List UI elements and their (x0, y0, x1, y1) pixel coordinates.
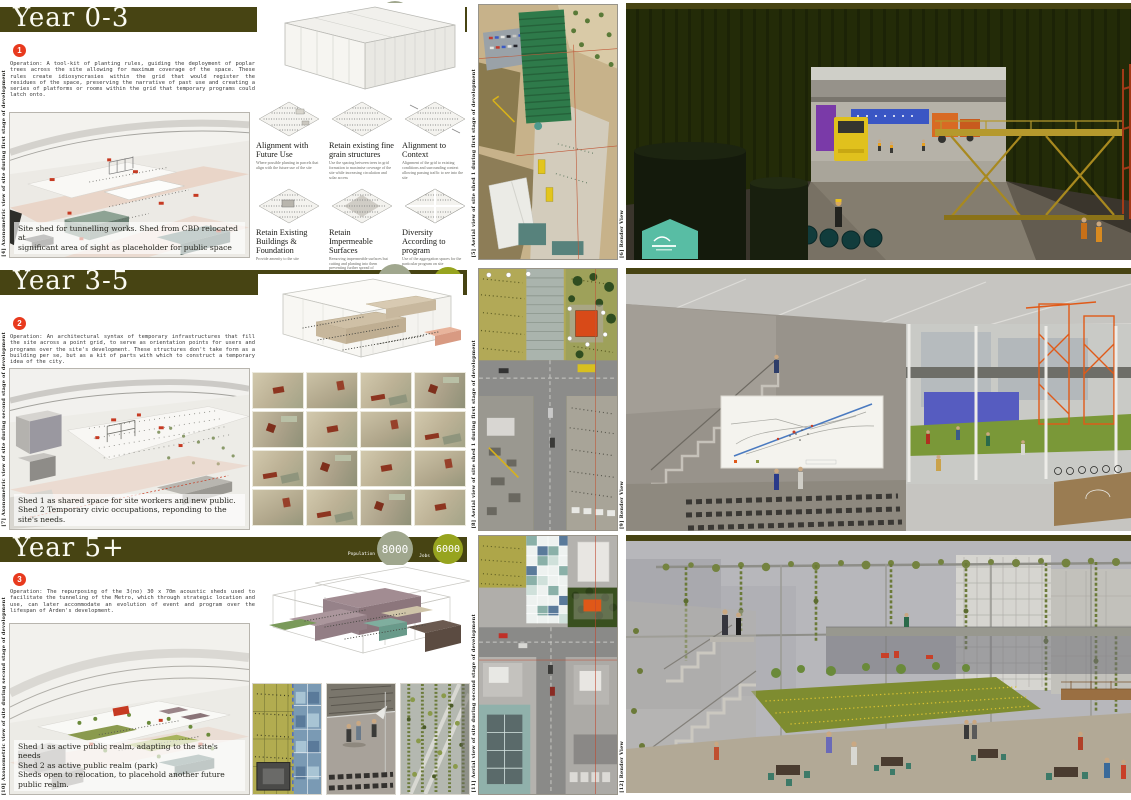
detail-photo-plaza (326, 683, 396, 795)
option-thumbnail (306, 411, 358, 448)
aerial-label-strip: [11] Aerial view of site during second s… (470, 535, 478, 795)
render-view-year-3-5 (626, 274, 1131, 531)
caption-line: Shed 1 as active public realm, adapting … (18, 742, 242, 761)
operation-text: Operation: The repurposing of the 3(no) … (10, 589, 255, 614)
option-thumbnail (414, 372, 466, 409)
option-thumbnail (360, 450, 412, 487)
jobs-value-badge: 6000 (433, 534, 463, 564)
render-label-strip: [12] Render View (618, 535, 626, 795)
grid-diamond-icon (329, 99, 395, 139)
strategy-desc: Use the spacing between trees in grid fo… (329, 161, 395, 181)
grid-diamond-icon (329, 186, 395, 226)
option-thumbnail (252, 450, 304, 487)
aerial-view-year-0-3 (479, 5, 617, 259)
step-number-badge: 3 (13, 573, 26, 586)
figure-caption: Shed 1 as shared space for site workers … (14, 494, 245, 526)
caption-line: Site shed for tunnelling works. Shed fro… (18, 224, 242, 243)
strategy-card: Retain existing fine grain structures Us… (329, 99, 395, 181)
figure-caption: Site shed for tunnelling works. Shed fro… (14, 222, 245, 254)
render-figure (626, 3, 1131, 260)
render-label-strip: [9] Render View (618, 268, 626, 531)
step-number-badge: 1 (13, 44, 26, 57)
render-side-label: [6] Render View (619, 210, 625, 258)
band-header: Year 5+ Population 8000 Jobs 6000 (0, 537, 467, 562)
aerial-photo (478, 268, 618, 531)
strategy-diagram-grid: Alignment with Future Use Where possible… (256, 99, 468, 286)
detail-photo-row (252, 683, 470, 795)
plan-detail-illustration (253, 684, 321, 794)
option-thumbnail (360, 489, 412, 526)
axonometric-figure: Site shed for tunnelling works. Shed fro… (9, 112, 250, 258)
shed-wireframe-figure (255, 565, 470, 677)
strategy-title: Retain Existing Buildings & Foundation (256, 228, 322, 255)
strategy-title: Retain existing fine grain structures (329, 141, 395, 159)
shed-wireframe-axon-year-0-3 (257, 3, 465, 95)
section-year-0-3: Year 0-3 Population 1000 Jobs 600 1 Oper… (0, 0, 1131, 262)
section-title: Year 0-3 (13, 4, 129, 33)
shed-wireframe-axon-year-3-5 (258, 274, 463, 370)
caption-line: significant area of sight as placeholder… (18, 243, 242, 252)
render-side-label: [12] Render View (619, 741, 625, 793)
option-thumbnail (414, 489, 466, 526)
population-value-badge: 8000 (377, 531, 413, 567)
option-thumbnail (414, 450, 466, 487)
aerial-photo (478, 535, 618, 795)
aerial-figure: [5] Aerial view of site shed 1 during fi… (470, 4, 626, 260)
strategy-title: Retain Impermeable Surfaces (329, 228, 395, 255)
caption-line: Shed 2 Temporary civic occupations, repo… (18, 505, 242, 524)
grid-diamond-icon (256, 99, 322, 139)
option-thumbnail (252, 489, 304, 526)
option-thumbnail (306, 372, 358, 409)
option-thumbnail (360, 411, 412, 448)
aerial-figure: [11] Aerial view of site during second s… (470, 535, 626, 795)
detail-photo-vines (400, 683, 470, 795)
operation-text: Operation: An architectural syntax of te… (10, 334, 255, 365)
option-thumbnail-grid (252, 372, 466, 526)
figure-caption: Shed 1 as active public realm, adapting … (14, 740, 245, 791)
jobs-label: Jobs (419, 554, 430, 559)
strategy-title: Alignment with Future Use (256, 141, 322, 159)
grid-diamond-icon (256, 186, 322, 226)
caption-line: Sheds open to relocation, to placehold a… (18, 770, 242, 789)
aerial-view-year-3-5 (479, 269, 617, 530)
operation-text: Operation: A tool-kit of planting rules,… (10, 61, 255, 99)
section-year-5plus: Year 5+ Population 8000 Jobs 6000 3 Oper… (0, 533, 1131, 800)
aerial-label-strip: [5] Aerial view of site shed 1 during fi… (470, 4, 478, 260)
presentation-board: Year 0-3 Population 1000 Jobs 600 1 Oper… (0, 0, 1131, 800)
strategy-desc: Where possible planting in parcels that … (256, 161, 322, 171)
shed-wireframe-figure (257, 3, 465, 95)
step-number-badge: 2 (13, 317, 26, 330)
section-title: Year 3-5 (13, 267, 129, 296)
render-view-year-0-3 (626, 9, 1131, 260)
strategy-title: Diversity According to program (402, 228, 468, 255)
aerial-side-label: [8] Aerial view of site shed 1 during fi… (471, 340, 477, 529)
caption-line: Shed 2 as active public realm (park) (18, 761, 242, 770)
strategy-desc: Provide amenity to the site (256, 257, 322, 262)
grid-diamond-icon (402, 99, 468, 139)
aerial-photo (478, 4, 618, 260)
option-thumbnail (306, 489, 358, 526)
axon-side-label: [7] Axonometric view of site during seco… (1, 332, 7, 527)
strategy-card: Alignment to Context Alignment of the gr… (402, 99, 468, 181)
option-thumbnail (252, 411, 304, 448)
option-thumbnail (360, 372, 412, 409)
strategy-title: Alignment to Context (402, 141, 468, 159)
render-label-strip: [6] Render View (618, 4, 626, 260)
render-figure (626, 268, 1131, 531)
population-label: Population (348, 552, 375, 557)
render-side-label: [9] Render View (619, 481, 625, 529)
axon-side-label: [4] Axonometric view of site during firs… (1, 70, 7, 257)
axon-side-label: [10] Axonometric view of site during sec… (1, 597, 7, 795)
aerial-side-label: [5] Aerial view of site shed 1 during fi… (471, 69, 477, 258)
aerial-view-year-5plus (479, 536, 617, 794)
strategy-desc: Alignment of the grid to existing condit… (402, 161, 468, 181)
strategy-card: Alignment with Future Use Where possible… (256, 99, 322, 181)
section-year-3-5: Year 3-5 Population 5500 Jobs 4000 2 Ope… (0, 262, 1131, 533)
render-view-year-5plus (626, 541, 1131, 793)
axonometric-figure: Shed 1 as shared space for site workers … (9, 368, 250, 530)
caption-line: Shed 1 as shared space for site workers … (18, 496, 242, 505)
axonometric-figure: Shed 1 as active public realm, adapting … (9, 623, 250, 795)
aerial-figure: [8] Aerial view of site shed 1 during fi… (470, 268, 626, 531)
plaza-detail-illustration (327, 684, 395, 794)
shed-wireframe-axon-year-5plus (255, 565, 470, 677)
render-figure (626, 535, 1131, 793)
aerial-label-strip: [8] Aerial view of site shed 1 during fi… (470, 268, 478, 531)
option-thumbnail (306, 450, 358, 487)
option-thumbnail (252, 372, 304, 409)
option-thumbnail (414, 411, 466, 448)
section-title: Year 5+ (13, 534, 125, 563)
grid-diamond-icon (402, 186, 468, 226)
shed-wireframe-figure (258, 274, 463, 370)
detail-photo-plan (252, 683, 322, 795)
aerial-side-label: [11] Aerial view of site during second s… (471, 614, 477, 793)
vine-structure-illustration (401, 684, 469, 794)
